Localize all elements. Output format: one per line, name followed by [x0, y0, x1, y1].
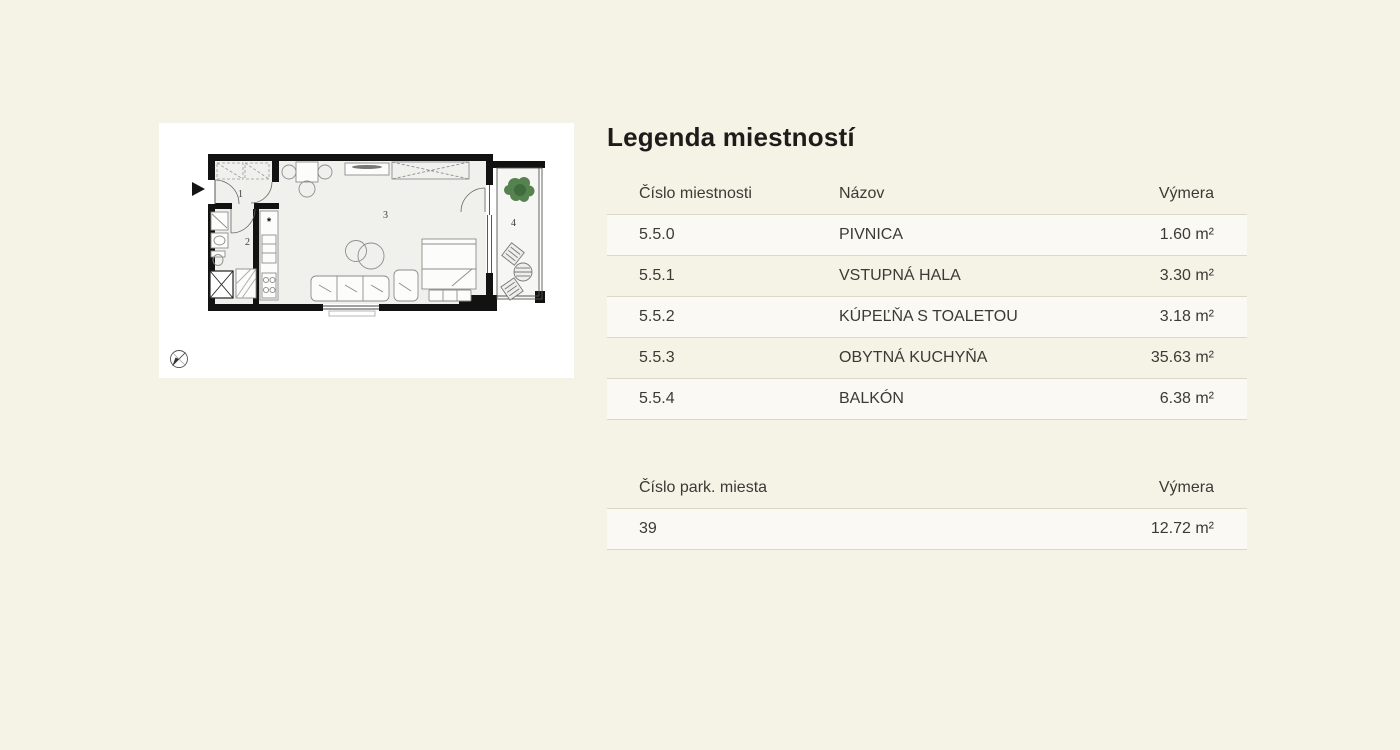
parking-area-cell: 12.72 m²	[1019, 517, 1247, 541]
legend-panel: Legenda miestností Číslo miestnosti Názo…	[607, 121, 1247, 550]
room-number-3: 3	[383, 210, 388, 221]
column-header-number: Číslo miestnosti	[607, 182, 839, 206]
room-name-cell: PIVNICA	[839, 223, 1019, 247]
column-header-parking-number: Číslo park. miesta	[607, 476, 839, 500]
room-area-cell: 3.30 m²	[1019, 264, 1247, 288]
table-row: 5.5.3 OBYTNÁ KUCHYŇA 35.63 m²	[607, 338, 1247, 379]
room-number-cell: 5.5.2	[607, 305, 839, 329]
room-area-cell: 35.63 m²	[1019, 346, 1247, 370]
entrance-arrow-icon	[192, 182, 205, 196]
parking-table: Číslo park. miesta Výmera 39 12.72 m²	[607, 468, 1247, 550]
room-number-cell: 5.5.1	[607, 264, 839, 288]
floorplan-image: *	[159, 123, 574, 378]
table-row: 5.5.2 KÚPEĽŇA S TOALETOU 3.18 m²	[607, 297, 1247, 338]
room-name-cell: VSTUPNÁ HALA	[839, 264, 1019, 288]
room-name-cell: KÚPEĽŇA S TOALETOU	[839, 305, 1019, 329]
floorplan-svg: *	[159, 123, 574, 378]
column-header-name: Názov	[839, 182, 1019, 206]
room-area-cell: 6.38 m²	[1019, 387, 1247, 411]
room-area-cell: 3.18 m²	[1019, 305, 1247, 329]
room-number-4: 4	[511, 218, 516, 229]
shaft-box	[210, 271, 233, 298]
room-area-cell: 1.60 m²	[1019, 223, 1247, 247]
page-title: Legenda miestností	[607, 121, 1247, 153]
parking-table-header: Číslo park. miesta Výmera	[607, 468, 1247, 509]
column-header-parking-area: Výmera	[1019, 476, 1247, 500]
kitchen-symbol: *	[267, 216, 272, 228]
room-name-cell: BALKÓN	[839, 387, 1019, 411]
table-row: 5.5.0 PIVNICA 1.60 m²	[607, 215, 1247, 256]
room-name-cell: OBYTNÁ KUCHYŇA	[839, 346, 1019, 370]
table-row: 5.5.1 VSTUPNÁ HALA 3.30 m²	[607, 256, 1247, 297]
column-header-area: Výmera	[1019, 182, 1247, 206]
table-row: 5.5.4 BALKÓN 6.38 m²	[607, 379, 1247, 420]
room-number-1: 1	[238, 189, 243, 200]
room-number-2: 2	[245, 237, 250, 248]
room-number-cell: 5.5.4	[607, 387, 839, 411]
parking-number-cell: 39	[607, 517, 839, 541]
rooms-table-header: Číslo miestnosti Názov Výmera	[607, 174, 1247, 215]
rooms-table: Číslo miestnosti Názov Výmera 5.5.0 PIVN…	[607, 174, 1247, 420]
room-number-cell: 5.5.0	[607, 223, 839, 247]
room-number-cell: 5.5.3	[607, 346, 839, 370]
table-row: 39 12.72 m²	[607, 509, 1247, 550]
compass-icon	[171, 351, 188, 368]
